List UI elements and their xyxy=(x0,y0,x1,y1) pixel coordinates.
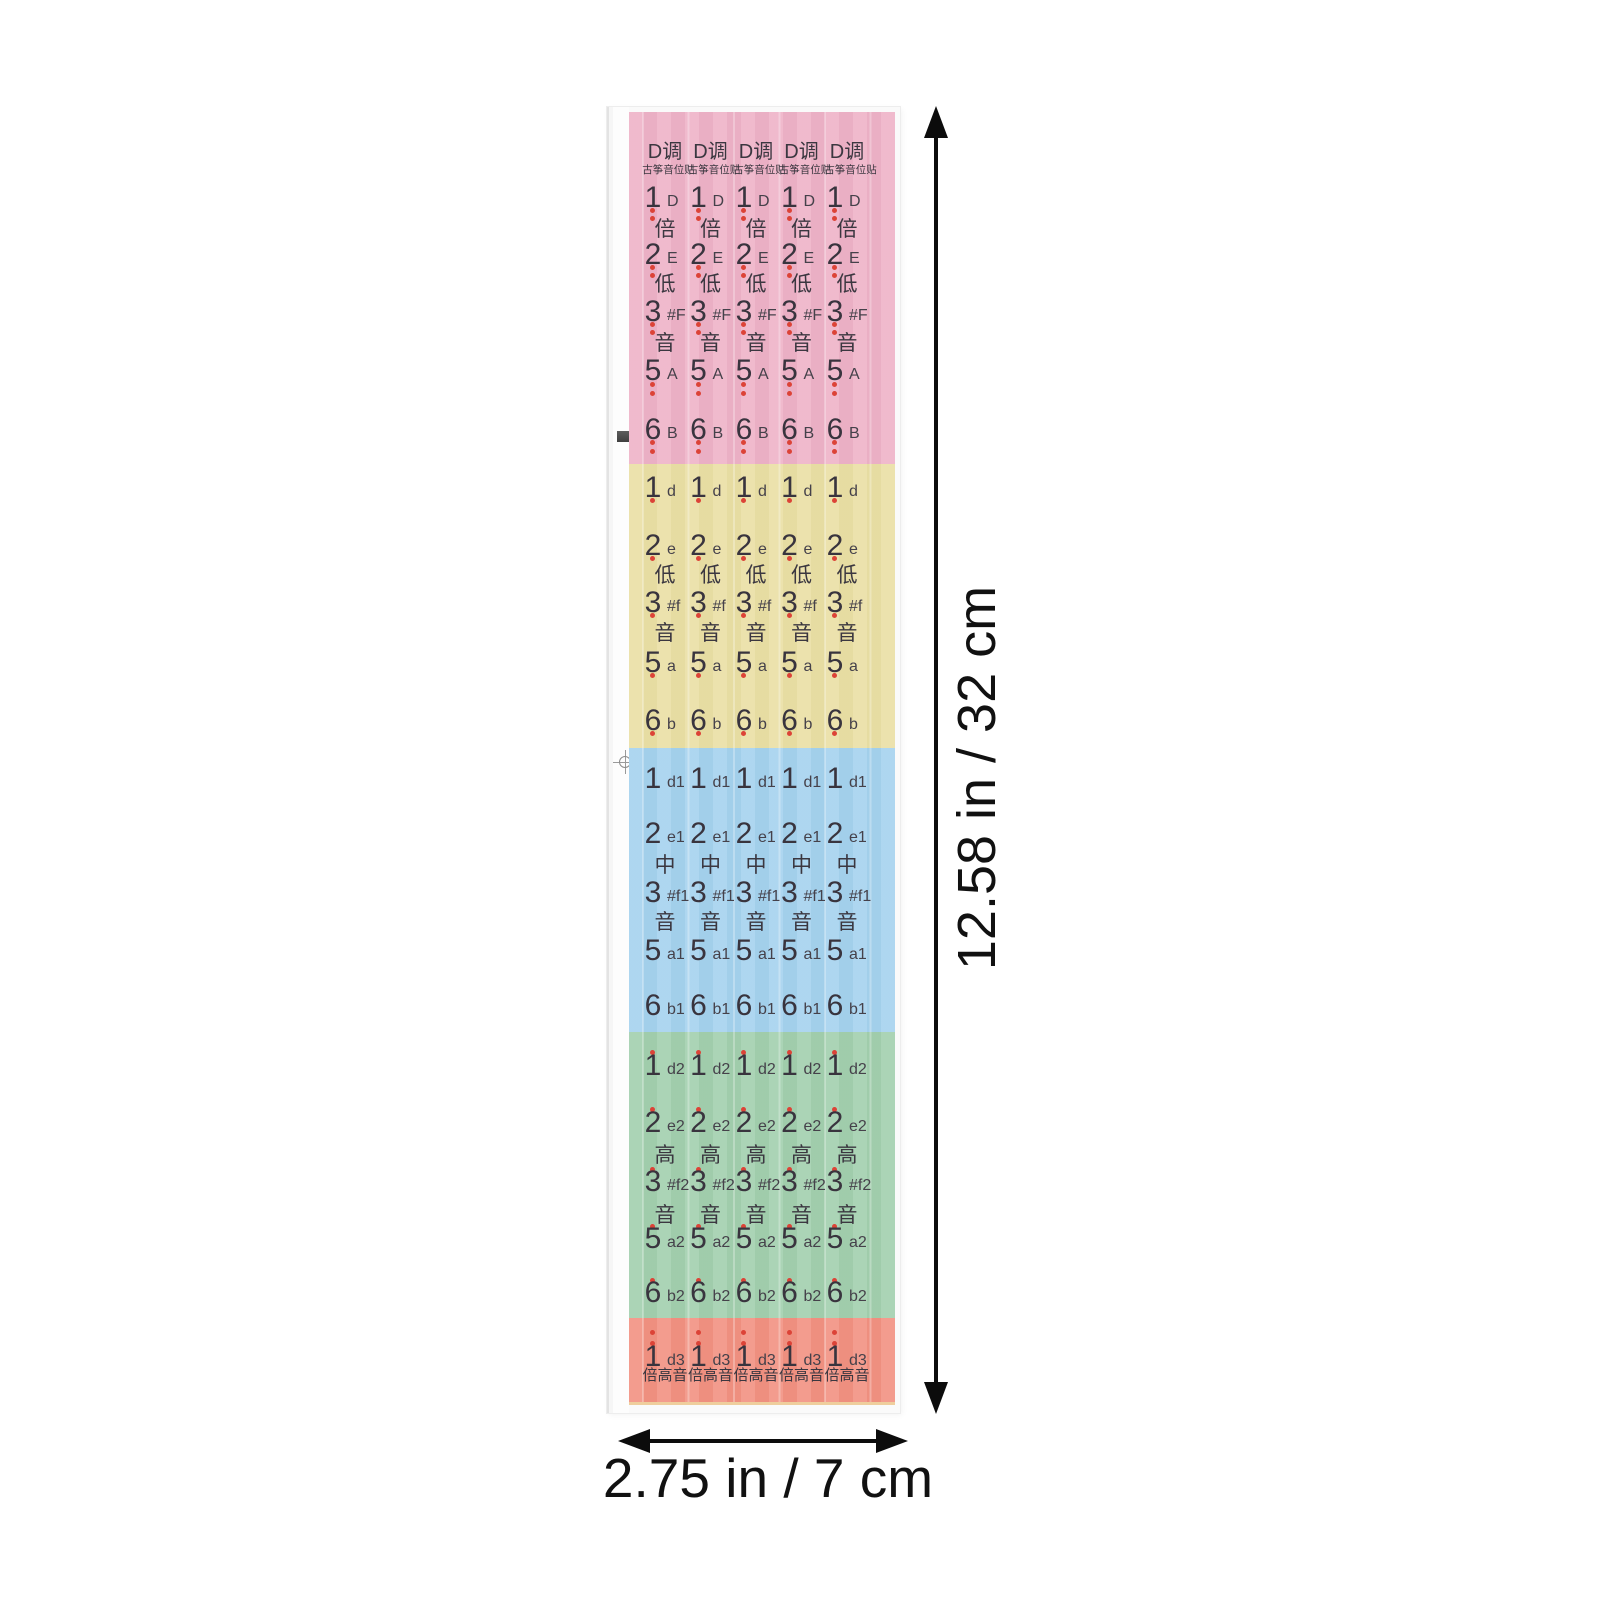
octave-dot xyxy=(741,613,746,618)
note-name: D xyxy=(667,194,679,210)
note-cell: 5a1 xyxy=(688,934,734,968)
jianpu-number: 5 xyxy=(779,1222,801,1256)
octave-dot xyxy=(650,391,655,396)
note-cell: 2e2 xyxy=(779,1106,825,1140)
octave-dot xyxy=(832,556,837,561)
note-cell: 2e1 xyxy=(733,817,779,851)
note-name: b2 xyxy=(804,1289,822,1305)
note-cell: 1d1 xyxy=(779,762,825,796)
note-cell: 1d1 xyxy=(642,762,688,796)
octave-dot xyxy=(787,382,792,387)
note-cell: 3#F xyxy=(688,295,734,329)
note-name: d xyxy=(667,484,676,500)
note-cell: 1d xyxy=(779,471,825,505)
note-name: B xyxy=(667,426,678,442)
octave-dot xyxy=(787,731,792,736)
sticker-column: 1d22e2高3#f2音5a26b2 xyxy=(733,1032,779,1318)
note-cell: 3#f2 xyxy=(779,1165,825,1199)
jianpu-number: 5 xyxy=(642,934,664,968)
note-cell: 3#f2 xyxy=(642,1165,688,1199)
note-name: e2 xyxy=(758,1119,776,1135)
sticker-section-double-low-octave: D调古筝音位贴1D倍2E低3#F音5A6BD调古筝音位贴1D倍2E低3#F音5A… xyxy=(629,112,895,464)
note-cell: 1d2 xyxy=(824,1049,870,1083)
jianpu-number: 6 xyxy=(688,1276,710,1310)
octave-kanji: 音 xyxy=(824,621,870,647)
jianpu-number: 1 xyxy=(779,1049,801,1083)
note-name: D xyxy=(804,194,816,210)
sticker-column: 1d3倍高音 xyxy=(688,1318,734,1402)
octave-dot xyxy=(696,391,701,396)
note-cell: 5A xyxy=(824,354,870,388)
note-cell: 6b2 xyxy=(824,1276,870,1310)
note-name: #f1 xyxy=(667,889,689,905)
octave-dot xyxy=(696,265,701,270)
note-name: D xyxy=(713,194,725,210)
note-cell: 1d1 xyxy=(824,762,870,796)
note-cell: 2e1 xyxy=(779,817,825,851)
octave-label: 倍高音 xyxy=(642,1366,688,1386)
octave-kanji: 音 xyxy=(779,621,825,647)
note-name: a1 xyxy=(713,947,731,963)
note-name: a2 xyxy=(713,1235,731,1251)
note-cell: 1d xyxy=(688,471,734,505)
note-cell: 3#f1 xyxy=(688,876,734,910)
jianpu-number: 2 xyxy=(779,817,801,851)
octave-kanji: 音 xyxy=(688,910,734,936)
octave-label: 倍高音 xyxy=(688,1366,734,1386)
jianpu-number: 6 xyxy=(642,1276,664,1310)
sticker-column: 1d2e低3#f音5a6b xyxy=(642,464,688,748)
octave-label: 倍高音 xyxy=(779,1366,825,1386)
note-cell: 1d2 xyxy=(642,1049,688,1083)
note-name: d1 xyxy=(667,775,685,791)
sticker-section-low-octave: 1d2e低3#f音5a6b1d2e低3#f音5a6b1d2e低3#f音5a6b1… xyxy=(629,464,895,748)
jianpu-number: 3 xyxy=(688,1165,710,1199)
octave-dot xyxy=(787,440,792,445)
jianpu-number: 5 xyxy=(688,1222,710,1256)
jianpu-number: 6 xyxy=(688,989,710,1023)
note-cell: 1d2 xyxy=(733,1049,779,1083)
octave-dot xyxy=(787,613,792,618)
note-cell: 5A xyxy=(688,354,734,388)
note-name: #F xyxy=(849,308,868,324)
note-name: B xyxy=(804,426,815,442)
octave-dot xyxy=(741,498,746,503)
note-cell: 6b1 xyxy=(779,989,825,1023)
note-cell: 5A xyxy=(733,354,779,388)
jianpu-number: 3 xyxy=(824,876,846,910)
note-cell: 1D xyxy=(688,181,734,215)
note-name: #f2 xyxy=(849,1178,871,1194)
note-cell: 5A xyxy=(642,354,688,388)
note-cell: 2e xyxy=(688,529,734,563)
octave-dot xyxy=(696,673,701,678)
sticker-column: 1d22e2高3#f2音5a26b2 xyxy=(779,1032,825,1318)
note-name: e1 xyxy=(758,830,776,846)
note-name: #f2 xyxy=(804,1178,826,1194)
jianpu-number: 3 xyxy=(733,876,755,910)
note-name: e1 xyxy=(849,830,867,846)
jianpu-number: 6 xyxy=(779,1276,801,1310)
jianpu-number: 5 xyxy=(824,934,846,968)
note-name: b2 xyxy=(713,1289,731,1305)
note-cell: 5a xyxy=(688,646,734,680)
note-name: a1 xyxy=(667,947,685,963)
note-name: d xyxy=(758,484,767,500)
note-cell: 5a2 xyxy=(688,1222,734,1256)
note-name: a xyxy=(849,659,858,675)
note-name: a2 xyxy=(758,1235,776,1251)
octave-dot xyxy=(832,498,837,503)
note-cell: 6b1 xyxy=(688,989,734,1023)
octave-dot xyxy=(741,1330,746,1335)
octave-kanji: 音 xyxy=(824,910,870,936)
octave-kanji: 音 xyxy=(688,621,734,647)
note-name: e xyxy=(758,542,767,558)
sticker-column: 1d2e低3#f音5a6b xyxy=(824,464,870,748)
octave-dot xyxy=(787,391,792,396)
height-dimension-line xyxy=(934,134,938,1386)
sticker-section-double-high-octave: 1d3倍高音1d3倍高音1d3倍高音1d3倍高音1d3倍高音 xyxy=(629,1318,895,1405)
octave-dot xyxy=(650,498,655,503)
octave-dot xyxy=(832,265,837,270)
arrow-up-icon xyxy=(924,106,948,138)
note-name: b xyxy=(713,717,722,733)
jianpu-number: 3 xyxy=(733,1165,755,1199)
octave-dot xyxy=(787,556,792,561)
octave-label: 倍高音 xyxy=(824,1366,870,1386)
note-cell: 6b xyxy=(688,704,734,738)
note-cell: 5a2 xyxy=(824,1222,870,1256)
jianpu-number: 6 xyxy=(733,1276,755,1310)
sticker-column: 1d12e1中3#f1音5a16b1 xyxy=(824,748,870,1032)
product-image: D调古筝音位贴1D倍2E低3#F音5A6BD调古筝音位贴1D倍2E低3#F音5A… xyxy=(0,0,1600,1600)
jianpu-number: 6 xyxy=(824,1276,846,1310)
note-name: a2 xyxy=(849,1235,867,1251)
sticker-column: 1d3倍高音 xyxy=(779,1318,825,1402)
octave-dot xyxy=(650,322,655,327)
sticker-column: 1d22e2高3#f2音5a26b2 xyxy=(824,1032,870,1318)
note-name: d2 xyxy=(667,1062,685,1078)
note-cell: 5a2 xyxy=(642,1222,688,1256)
octave-dot xyxy=(650,673,655,678)
note-name: d1 xyxy=(758,775,776,791)
note-name: a1 xyxy=(758,947,776,963)
note-name: #f1 xyxy=(849,889,871,905)
note-name: E xyxy=(713,251,724,267)
jianpu-number: 6 xyxy=(779,989,801,1023)
sticker-column: D调古筝音位贴1D倍2E低3#F音5A6B xyxy=(688,112,734,464)
jianpu-number: 3 xyxy=(824,1165,846,1199)
jianpu-number: 1 xyxy=(642,762,664,796)
jianpu-number: 1 xyxy=(824,1049,846,1083)
sticker-column: 1d12e1中3#f1音5a16b1 xyxy=(688,748,734,1032)
octave-dot xyxy=(650,440,655,445)
octave-dot xyxy=(832,322,837,327)
jianpu-number: 6 xyxy=(824,989,846,1023)
sticker-column: D调古筝音位贴1D倍2E低3#F音5A6B xyxy=(779,112,825,464)
note-cell: 5a1 xyxy=(733,934,779,968)
sticker-column: 1d22e2高3#f2音5a26b2 xyxy=(688,1032,734,1318)
note-name: e xyxy=(849,542,858,558)
note-name: E xyxy=(667,251,678,267)
sticker-sheet-strip: D调古筝音位贴1D倍2E低3#F音5A6BD调古筝音位贴1D倍2E低3#F音5A… xyxy=(607,107,900,1413)
note-name: d2 xyxy=(713,1062,731,1078)
height-dimension-label: 12.58 in / 32 cm xyxy=(946,586,1008,970)
note-name: a xyxy=(667,659,676,675)
note-name: b xyxy=(849,717,858,733)
octave-dot xyxy=(696,556,701,561)
note-name: d xyxy=(849,484,858,500)
note-name: d2 xyxy=(849,1062,867,1078)
octave-dot xyxy=(832,440,837,445)
sheet-subtitle: 古筝音位贴 xyxy=(779,162,825,178)
note-name: #f1 xyxy=(713,889,735,905)
jianpu-number: 2 xyxy=(824,817,846,851)
note-name: A xyxy=(758,367,769,383)
octave-dot xyxy=(832,673,837,678)
note-name: e1 xyxy=(713,830,731,846)
note-name: a2 xyxy=(667,1235,685,1251)
note-cell: 2E xyxy=(688,238,734,272)
octave-dot xyxy=(650,731,655,736)
note-name: #f1 xyxy=(804,889,826,905)
note-cell: 2e2 xyxy=(642,1106,688,1140)
note-cell: 1d2 xyxy=(688,1049,734,1083)
note-name: E xyxy=(849,251,860,267)
octave-kanji: 音 xyxy=(733,621,779,647)
octave-dot xyxy=(741,731,746,736)
jianpu-number: 2 xyxy=(642,817,664,851)
octave-dot xyxy=(696,498,701,503)
note-cell: 5a1 xyxy=(779,934,825,968)
octave-dot xyxy=(832,449,837,454)
note-name: a xyxy=(804,659,813,675)
octave-dot xyxy=(650,556,655,561)
note-name: e2 xyxy=(667,1119,685,1135)
note-name: A xyxy=(849,367,860,383)
sticker-column: 1d12e1中3#f1音5a16b1 xyxy=(779,748,825,1032)
note-name: a1 xyxy=(804,947,822,963)
jianpu-number: 3 xyxy=(688,876,710,910)
note-name: b xyxy=(667,717,676,733)
octave-dot xyxy=(650,613,655,618)
jianpu-number: 2 xyxy=(733,817,755,851)
octave-dot xyxy=(696,322,701,327)
jianpu-number: 3 xyxy=(642,876,664,910)
octave-dot xyxy=(650,208,655,213)
note-name: B xyxy=(713,426,724,442)
note-name: A xyxy=(713,367,724,383)
octave-dot xyxy=(696,731,701,736)
sticker-column: 1d3倍高音 xyxy=(824,1318,870,1402)
sticker-column: D调古筝音位贴1D倍2E低3#F音5A6B xyxy=(733,112,779,464)
note-name: e2 xyxy=(713,1119,731,1135)
note-cell: 1d2 xyxy=(779,1049,825,1083)
jianpu-number: 1 xyxy=(688,762,710,796)
note-name: b2 xyxy=(667,1289,685,1305)
jianpu-number: 3 xyxy=(642,1165,664,1199)
sticker-column: D调古筝音位贴1D倍2E低3#F音5A6B xyxy=(642,112,688,464)
note-cell: 1d1 xyxy=(688,762,734,796)
note-name: #f1 xyxy=(758,889,780,905)
octave-dot xyxy=(741,449,746,454)
note-name: #f xyxy=(713,599,726,615)
jianpu-number: 5 xyxy=(733,934,755,968)
octave-dot xyxy=(832,382,837,387)
note-name: e2 xyxy=(849,1119,867,1135)
note-name: b2 xyxy=(758,1289,776,1305)
octave-dot xyxy=(741,673,746,678)
note-name: d1 xyxy=(804,775,822,791)
note-cell: 3#f xyxy=(688,586,734,620)
note-name: a xyxy=(758,659,767,675)
note-name: E xyxy=(804,251,815,267)
note-name: #f2 xyxy=(667,1178,689,1194)
octave-dot xyxy=(787,449,792,454)
octave-kanji: 音 xyxy=(642,621,688,647)
note-name: d xyxy=(713,484,722,500)
note-name: #F xyxy=(713,308,732,324)
note-cell: 2e1 xyxy=(688,817,734,851)
note-name: d1 xyxy=(849,775,867,791)
note-name: A xyxy=(804,367,815,383)
width-dimension-line xyxy=(645,1439,880,1443)
octave-dot xyxy=(787,1330,792,1335)
note-cell: 5A xyxy=(779,354,825,388)
note-cell: 1D xyxy=(779,181,825,215)
note-name: B xyxy=(758,426,769,442)
note-name: #f xyxy=(667,599,680,615)
octave-kanji: 音 xyxy=(733,910,779,936)
octave-dot xyxy=(741,322,746,327)
note-name: b xyxy=(758,717,767,733)
octave-dot xyxy=(650,382,655,387)
note-name: B xyxy=(849,426,860,442)
note-cell: 2e1 xyxy=(642,817,688,851)
note-cell: 3#F xyxy=(779,295,825,329)
note-name: b xyxy=(804,717,813,733)
note-name: b1 xyxy=(758,1002,776,1018)
note-name: #F xyxy=(667,308,686,324)
note-cell: 6b1 xyxy=(733,989,779,1023)
jianpu-number: 3 xyxy=(779,1165,801,1199)
note-cell: 2E xyxy=(779,238,825,272)
sticker-column: 1d3倍高音 xyxy=(642,1318,688,1402)
note-cell: 3#f xyxy=(779,586,825,620)
note-cell: 2e2 xyxy=(824,1106,870,1140)
jianpu-number: 1 xyxy=(779,762,801,796)
sticker-sheet: D调古筝音位贴1D倍2E低3#F音5A6BD调古筝音位贴1D倍2E低3#F音5A… xyxy=(629,112,895,1405)
note-cell: 6B xyxy=(779,413,825,447)
octave-dot xyxy=(741,208,746,213)
octave-dot xyxy=(741,382,746,387)
note-name: D xyxy=(758,194,770,210)
note-name: A xyxy=(667,367,678,383)
octave-dot xyxy=(787,265,792,270)
octave-dot xyxy=(650,1330,655,1335)
octave-dot xyxy=(832,613,837,618)
sheet-subtitle: 古筝音位贴 xyxy=(733,162,779,178)
octave-dot xyxy=(787,322,792,327)
sheet-subtitle: 古筝音位贴 xyxy=(824,162,870,178)
octave-dot xyxy=(741,440,746,445)
sticker-column: 1d2e低3#f音5a6b xyxy=(733,464,779,748)
jianpu-number: 3 xyxy=(779,876,801,910)
octave-dot xyxy=(650,449,655,454)
jianpu-number: 5 xyxy=(642,1222,664,1256)
note-cell: 2e2 xyxy=(733,1106,779,1140)
note-name: #F xyxy=(804,308,823,324)
jianpu-number: 6 xyxy=(733,989,755,1023)
octave-dot xyxy=(832,208,837,213)
jianpu-number: 2 xyxy=(733,1106,755,1140)
jianpu-number: 2 xyxy=(824,1106,846,1140)
note-cell: 5a xyxy=(779,646,825,680)
sticker-column: D调古筝音位贴1D倍2E低3#F音5A6B xyxy=(824,112,870,464)
note-name: D xyxy=(849,194,861,210)
note-name: #f2 xyxy=(713,1178,735,1194)
octave-kanji: 音 xyxy=(642,910,688,936)
note-name: d2 xyxy=(758,1062,776,1078)
note-cell: 5a2 xyxy=(733,1222,779,1256)
note-name: E xyxy=(758,251,769,267)
note-cell: 3#f2 xyxy=(688,1165,734,1199)
note-name: e1 xyxy=(667,830,685,846)
note-name: b1 xyxy=(849,1002,867,1018)
sticker-column: 1d12e1中3#f1音5a16b1 xyxy=(642,748,688,1032)
octave-dot xyxy=(696,440,701,445)
octave-dot xyxy=(832,731,837,736)
note-cell: 6b2 xyxy=(688,1276,734,1310)
sticker-column: 1d12e1中3#f1音5a16b1 xyxy=(733,748,779,1032)
octave-kanji: 音 xyxy=(779,910,825,936)
note-cell: 6b xyxy=(779,704,825,738)
sheet-subtitle: 古筝音位贴 xyxy=(688,162,734,178)
note-name: d2 xyxy=(804,1062,822,1078)
note-cell: 3#f1 xyxy=(642,876,688,910)
note-cell: 3#f1 xyxy=(733,876,779,910)
octave-dot xyxy=(741,556,746,561)
jianpu-number: 1 xyxy=(733,1049,755,1083)
note-name: #f xyxy=(758,599,771,615)
jianpu-number: 2 xyxy=(642,1106,664,1140)
note-name: e xyxy=(804,542,813,558)
jianpu-number: 5 xyxy=(779,934,801,968)
octave-dot xyxy=(696,208,701,213)
note-name: #F xyxy=(758,308,777,324)
note-name: #f xyxy=(804,599,817,615)
jianpu-number: 2 xyxy=(779,1106,801,1140)
note-cell: 5a1 xyxy=(824,934,870,968)
octave-label: 倍高音 xyxy=(733,1366,779,1386)
note-name: d xyxy=(804,484,813,500)
sticker-column: 1d22e2高3#f2音5a26b2 xyxy=(642,1032,688,1318)
note-name: e xyxy=(713,542,722,558)
note-cell: 5a2 xyxy=(779,1222,825,1256)
sticker-column: 1d3倍高音 xyxy=(733,1318,779,1402)
jianpu-number: 5 xyxy=(688,934,710,968)
jianpu-number: 1 xyxy=(688,1049,710,1083)
jianpu-number: 2 xyxy=(688,817,710,851)
octave-dot xyxy=(696,382,701,387)
note-cell: 6b1 xyxy=(824,989,870,1023)
octave-dot xyxy=(741,265,746,270)
width-dimension-label: 2.75 in / 7 cm xyxy=(603,1446,933,1510)
note-cell: 6B xyxy=(688,413,734,447)
note-name: d1 xyxy=(713,775,731,791)
note-cell: 6b2 xyxy=(779,1276,825,1310)
